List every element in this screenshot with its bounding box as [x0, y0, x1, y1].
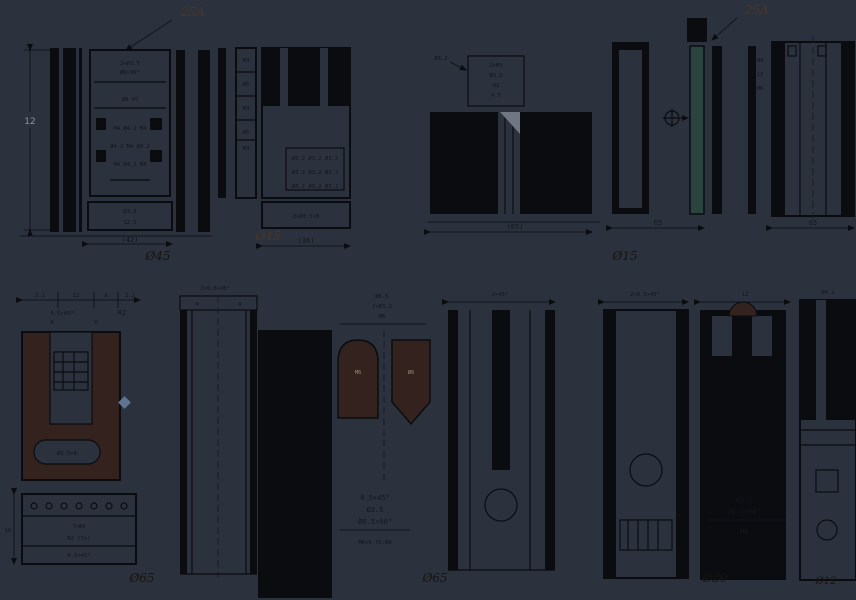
- teal-plate: [690, 46, 704, 214]
- hole-grid-row: Ø3.2 Ø3.2 Ø3.2: [292, 183, 338, 190]
- micro-dim: R2 (7×): [67, 536, 90, 542]
- dim-width: 65: [809, 219, 817, 227]
- micro-dim: Ø3.5: [489, 72, 502, 79]
- micro-dim: R2: [118, 309, 126, 317]
- micro-dim: 2×Ø3.2: [372, 303, 392, 310]
- surface-note: 25A: [180, 5, 205, 19]
- hole-grid-row: M4 Ø4.2 M4: [113, 125, 147, 132]
- micro-dim: 7×Ø4: [72, 523, 86, 530]
- micro-dim: Ø3.5: [123, 208, 136, 215]
- hole-grid-row: M4 Ø4.2 M4: [113, 161, 147, 168]
- surface-note: 25A: [744, 3, 769, 17]
- diameter-callout: Ø30: [701, 571, 727, 585]
- dim-height: 12: [24, 117, 35, 127]
- weld-mark-icon: ✕: [93, 319, 98, 326]
- diameter-callout: Ø12: [815, 576, 837, 587]
- micro-dim: Ø4: [757, 57, 764, 64]
- micro-dim: 2×Ø3.5×8: [293, 213, 320, 220]
- micro-dim: 12.5: [123, 220, 136, 226]
- micro-dim: 4.5: [491, 93, 501, 99]
- micro-dim: Ø5: [243, 81, 250, 88]
- micro-dim: M3: [243, 106, 250, 112]
- micro-dim: 8: [104, 293, 107, 299]
- weld-mark-icon: ✕: [237, 301, 242, 308]
- micro-dim: Ø6: [408, 369, 415, 376]
- micro-dim: Ø3.5×8: [57, 450, 77, 457]
- micro-dim: Ø6×90°: [120, 69, 140, 76]
- weld-mark-icon: ✕: [49, 319, 54, 326]
- note-line: 0.5×45°: [360, 494, 390, 502]
- micro-dim: M6: [355, 370, 362, 376]
- micro-dim: M3: [243, 58, 250, 64]
- micro-dim: 2×M3: [489, 63, 502, 69]
- micro-dim: Ø6.5: [375, 293, 388, 300]
- micro-dim: 2×Ø3.5: [120, 60, 140, 67]
- weld-mark-icon: ✕: [194, 301, 199, 308]
- micro-dim: R2: [493, 83, 500, 89]
- note-line: Ø3.5: [367, 506, 384, 514]
- diameter-callout: Ø45: [144, 249, 170, 263]
- micro-dim: 3.2: [125, 293, 135, 299]
- note-line: Ø6.5×90°: [358, 518, 392, 526]
- micro-dim: Ø4.2: [821, 289, 834, 296]
- micro-dim: M3: [243, 146, 250, 152]
- micro-dim: Ø6: [757, 85, 764, 92]
- diameter-callout: Ø45: [254, 229, 280, 243]
- note-line: M6: [740, 528, 748, 536]
- micro-dim: 2×45°: [492, 292, 509, 298]
- note-line: Ø3.2: [736, 496, 753, 504]
- diameter-callout: Ø65: [128, 571, 154, 585]
- diameter-callout: Ø65: [421, 571, 447, 585]
- micro-dim: 3.2: [35, 293, 45, 299]
- micro-dim: 12: [757, 72, 764, 78]
- dim-width: (36): [298, 237, 315, 245]
- hole-grid-row: Ø4.2 M4 Ø4.2: [110, 143, 150, 150]
- note-line: Ø6.5×90°: [727, 508, 761, 516]
- diameter-callout: Ø15: [611, 249, 637, 263]
- dim-width: 65: [654, 219, 662, 227]
- hole-grid-row: Ø3.2 Ø3.2 Ø3.2: [292, 155, 338, 162]
- micro-dim: 2×0.5×45°: [630, 292, 660, 298]
- dim-width: (42): [122, 236, 139, 244]
- drawing-sheet: 25A 12 2×Ø3.5 Ø6×90° Ø8 H7 M4 Ø4.2 M4 Ø4…: [0, 0, 856, 600]
- arch-section-left: [338, 340, 378, 418]
- dim-width: (65): [507, 223, 524, 231]
- hole-grid-row: Ø3.2 Ø3.2 Ø3.2: [292, 169, 338, 176]
- micro-dim: Ø5: [243, 129, 250, 136]
- micro-dim: 0.5×45°: [50, 311, 73, 317]
- micro-dim: M6: [379, 314, 386, 320]
- micro-dim: Ø8 H7: [122, 96, 139, 103]
- micro-dim: 2×0.5×45°: [200, 286, 230, 292]
- note-line: M6×0.75-6H: [358, 540, 391, 546]
- micro-dim: Ø3.2: [434, 55, 447, 62]
- micro-dim: 12: [73, 293, 80, 299]
- dim-height: 18: [5, 528, 12, 534]
- micro-dim: 12: [742, 292, 749, 298]
- micro-dim: 0.5×45°: [67, 553, 90, 559]
